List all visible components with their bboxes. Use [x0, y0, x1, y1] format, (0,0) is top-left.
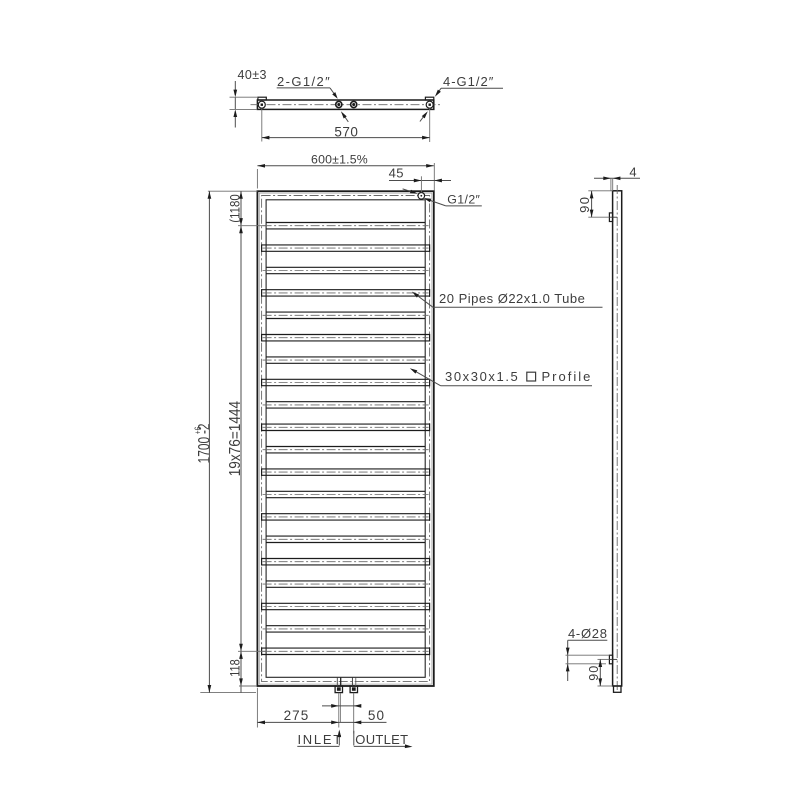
svg-text:Profile: Profile — [542, 369, 593, 384]
svg-text:90: 90 — [577, 195, 592, 212]
svg-text:2-G1/2″: 2-G1/2″ — [277, 74, 331, 89]
svg-text:4: 4 — [629, 164, 636, 179]
svg-text:50: 50 — [368, 708, 385, 723]
svg-text:+6: +6 — [193, 426, 203, 434]
svg-text:OUTLET: OUTLET — [355, 732, 408, 747]
svg-text:19x76=1444: 19x76=1444 — [227, 401, 244, 476]
svg-text:30x30x1.5: 30x30x1.5 — [445, 369, 519, 384]
svg-text:4-Ø28: 4-Ø28 — [568, 626, 608, 641]
svg-text:90: 90 — [587, 665, 601, 681]
svg-text:40±3: 40±3 — [238, 68, 267, 82]
svg-text:600±1.5%: 600±1.5% — [311, 152, 368, 166]
svg-text:45: 45 — [389, 166, 404, 181]
svg-text:118: 118 — [227, 659, 243, 676]
svg-text:275: 275 — [284, 708, 310, 723]
svg-text:1700: 1700 — [196, 437, 214, 463]
svg-text:G1/2″: G1/2″ — [447, 193, 480, 207]
svg-text:20 Pipes Ø22x1.0 Tube: 20 Pipes Ø22x1.0 Tube — [439, 291, 585, 306]
svg-text:4-G1/2″: 4-G1/2″ — [443, 74, 494, 89]
svg-text:INLET: INLET — [298, 732, 343, 747]
